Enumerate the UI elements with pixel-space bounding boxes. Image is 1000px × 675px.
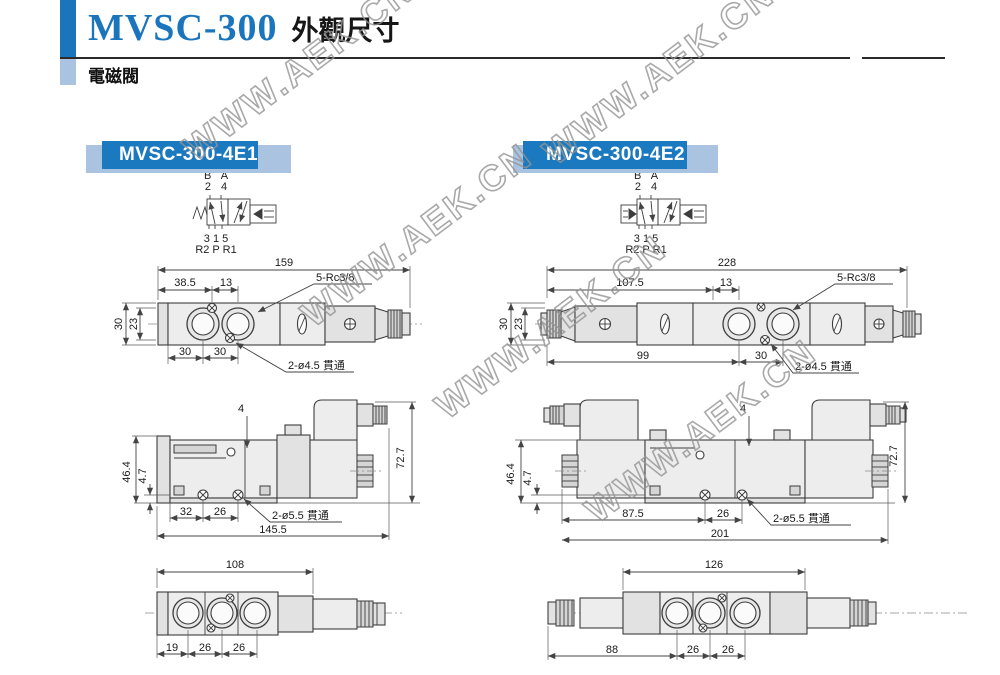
title-model: MVSC-300	[88, 7, 278, 49]
dim-label: 107.5	[616, 277, 644, 289]
dim-label: 145.5	[259, 524, 287, 536]
hole-note: 2-ø5.5 貫通	[773, 512, 830, 525]
thread-note: 5-Rc3/8	[837, 272, 876, 284]
dim-label: 26	[717, 508, 729, 520]
valve-body-side-4e2	[544, 400, 906, 503]
valve-symbol-drawing	[190, 195, 320, 233]
bottom-view-4e1: 108 19 26 26	[130, 556, 430, 671]
section-header-4e2: MVSC-300-4E2	[513, 141, 718, 174]
dim-label: 30	[214, 346, 226, 358]
valve-body	[621, 195, 706, 229]
dim-label: 72.7	[888, 445, 900, 466]
bottom-view-4e2: 126 88 26 26	[545, 556, 975, 675]
plug-ribs	[886, 406, 900, 424]
subtitle: 電磁閥	[88, 62, 139, 87]
dim-label: 38.5	[174, 277, 195, 289]
side-view-4e2: 4 72.7 46.4 4.7 87.5 26 2-ø5.5 貫通 201	[495, 386, 925, 560]
header-rule-2	[862, 57, 945, 59]
dim-label: 32	[180, 506, 192, 518]
dim-label: 26	[233, 642, 245, 654]
dim-label: 99	[637, 350, 649, 362]
dim-label: 19	[166, 642, 178, 654]
accent-bar-dark	[60, 0, 76, 57]
page-title: MVSC-300外觀尺寸	[88, 6, 400, 50]
side-view-4e1: 4 72.7 46.4 4.7 32 26 2-ø5.5 貫通 145.5	[110, 388, 430, 558]
section-header-4e1: MVSC-300-4E1	[86, 141, 291, 174]
dim-label: 30	[113, 318, 125, 330]
dim-label: 228	[718, 257, 736, 269]
dim-label: 159	[275, 257, 293, 269]
valve-body	[193, 195, 276, 229]
hole-note: 2-ø4.5 貫通	[288, 359, 345, 372]
top-view-4e2: 228 107.5 13 5-Rc3/8 30 23 99 30 2-ø4.5 …	[495, 250, 925, 376]
dim-label: 30	[755, 350, 767, 362]
valve-symbol-drawing	[620, 195, 750, 233]
dim-label: 26	[687, 644, 699, 656]
coil-connector-left	[580, 400, 638, 440]
dim-label: 13	[720, 277, 732, 289]
dim-label: 23	[513, 318, 525, 330]
coil-connector	[314, 400, 357, 440]
valve-body-bottom-4e1	[157, 592, 385, 635]
dim-label: 108	[226, 559, 244, 571]
coil-connector-right	[812, 400, 870, 440]
section-label: MVSC-300-4E1	[86, 141, 291, 169]
dim-label: 46.4	[121, 461, 133, 482]
dim-label: 26	[722, 644, 734, 656]
dim-label: 87.5	[622, 508, 643, 520]
dim-label: 201	[711, 528, 729, 540]
dim-label: 13	[220, 277, 232, 289]
hole-note: 2-ø4.5 貫通	[795, 360, 852, 373]
solenoid-body	[310, 440, 357, 498]
pneumatic-symbol-4e1: B A 2 4 3 1 5 R2 P R1	[190, 171, 320, 259]
plug-ribs	[550, 406, 564, 424]
valve-body-top-4e2	[541, 303, 921, 345]
port-numbers-top: 2 4	[620, 181, 672, 193]
thread-note: 5-Rc3/8	[316, 272, 355, 284]
dim-label: 26	[214, 506, 226, 518]
dim-label: 4	[740, 403, 746, 415]
dim-label: 4.7	[522, 470, 534, 485]
top-view-4e1: 159 38.5 13 5-Rc3/8 30 23 30 30 2-ø4.5 貫…	[110, 250, 430, 376]
dim-label: 72.7	[395, 447, 407, 468]
valve-body-bottom-4e2	[548, 592, 876, 634]
dim-label: 88	[606, 644, 618, 656]
spring-icon	[193, 207, 207, 219]
dim-label: 4.7	[137, 468, 149, 483]
hole-note: 2-ø5.5 貫通	[272, 509, 329, 522]
dim-label: 30	[498, 318, 510, 330]
section-label: MVSC-300-4E2	[513, 141, 718, 169]
pneumatic-symbol-4e2: B A 2 4 3 1 5 R2 P R1	[620, 171, 750, 259]
dim-label: 126	[705, 559, 723, 571]
dim-label: 46.4	[505, 463, 517, 484]
solenoid-body-right	[805, 440, 873, 498]
dim-label: 23	[128, 318, 140, 330]
solenoid-body-left	[577, 440, 645, 498]
dim-label: 4	[238, 403, 244, 415]
dim-label: 26	[199, 642, 211, 654]
header-rule	[60, 57, 850, 59]
accent-bar-light	[60, 57, 76, 85]
valve-body-top-4e1	[158, 303, 410, 345]
port-numbers-top: 2 4	[190, 181, 242, 193]
dim-label: 30	[179, 346, 191, 358]
datasheet-page: MVSC-300外觀尺寸 電磁閥 WWW.AEK.CN WWW.AEK.CN W…	[0, 0, 1000, 675]
title-suffix: 外觀尺寸	[292, 16, 400, 46]
valve-body-side-4e1	[157, 400, 387, 503]
